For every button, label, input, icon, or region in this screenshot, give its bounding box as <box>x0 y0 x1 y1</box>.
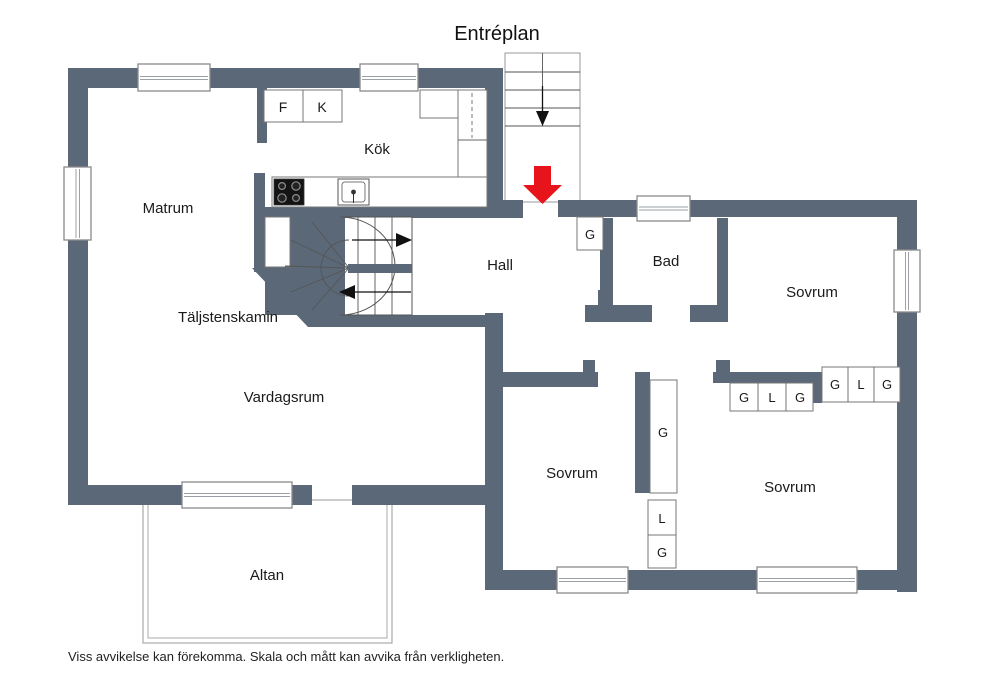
wall-bad-bottom-stub <box>598 290 612 305</box>
label-row-lower-l: L <box>768 390 775 405</box>
room-label-kok: Kök <box>364 141 390 158</box>
window-sovrum-ne-right <box>894 250 920 312</box>
room-label-matrum: Matrum <box>143 200 194 217</box>
wall-connector-vertical <box>485 313 503 590</box>
wall-top-left-section <box>68 68 503 88</box>
wall-stair-bottom <box>308 315 503 327</box>
stove-icon <box>274 179 304 205</box>
label-row-lower-g1: G <box>739 390 749 405</box>
wall-stub-stair-left <box>254 173 265 272</box>
wall-left <box>68 68 88 505</box>
wall-closet-left <box>635 372 650 493</box>
stair-niche <box>265 217 290 267</box>
room-label-sovrum-ne: Sovrum <box>786 284 838 301</box>
wall-stair-top <box>254 207 503 218</box>
wall-kitchen-right <box>485 68 503 218</box>
corner-cabinet <box>420 90 458 118</box>
window-vardagsrum-bottom <box>182 482 292 508</box>
window-matrum-left <box>64 167 91 240</box>
window-kok-top <box>360 64 418 91</box>
label-closet-tall-g: G <box>658 425 668 440</box>
wall-sovrum-sw-top <box>503 372 598 387</box>
wall-bottom-vardagsrum-b <box>352 485 503 505</box>
label-row-lower-g2: G <box>795 390 805 405</box>
window-sovrum-se-bottom <box>757 567 857 593</box>
room-label-altan: Altan <box>250 567 284 584</box>
room-label-sovrum-sw: Sovrum <box>546 465 598 482</box>
floorplan-page: Entréplan Matrum Kök Hall Bad Sovrum Sov… <box>0 0 990 700</box>
floorplan-drawing: Entréplan Matrum Kök Hall Bad Sovrum Sov… <box>0 0 990 700</box>
label-row-upper-l: L <box>857 377 864 392</box>
disclaimer-text: Viss avvikelse kan förekomma. Skala och … <box>68 649 504 664</box>
wall-bad-sovrum-divider <box>717 218 728 322</box>
label-freezer: K <box>317 99 327 115</box>
page-title: Entréplan <box>454 23 540 45</box>
wall-sovrum-sw-stub <box>583 360 595 372</box>
label-taljstenskamin: Täljstenskamin <box>178 309 278 326</box>
window-sovrum-sw-bottom <box>557 567 628 593</box>
window-matrum-top <box>138 64 210 91</box>
wall-closet-row-sliver <box>813 372 822 403</box>
wall-top-right-section <box>558 200 917 217</box>
room-label-sovrum-se: Sovrum <box>764 479 816 496</box>
room-label-bad: Bad <box>653 253 680 270</box>
label-fridge: F <box>279 99 288 115</box>
window-bad-top <box>637 196 690 221</box>
wall-sovrum-se-stub <box>716 360 730 372</box>
wall-bad-bottom-left <box>585 305 652 322</box>
label-row-upper-g1: G <box>830 377 840 392</box>
label-closet-mid-g: G <box>657 545 667 560</box>
label-closet-hall-g: G <box>585 227 595 242</box>
label-row-upper-g2: G <box>882 377 892 392</box>
room-label-hall: Hall <box>487 257 513 274</box>
room-label-vardagsrum: Vardagsrum <box>244 389 325 406</box>
label-closet-mid-l: L <box>658 511 665 526</box>
wall-sovrum-se-band <box>713 372 822 383</box>
stair-divider-wall <box>348 264 412 273</box>
sink-icon <box>338 179 369 205</box>
